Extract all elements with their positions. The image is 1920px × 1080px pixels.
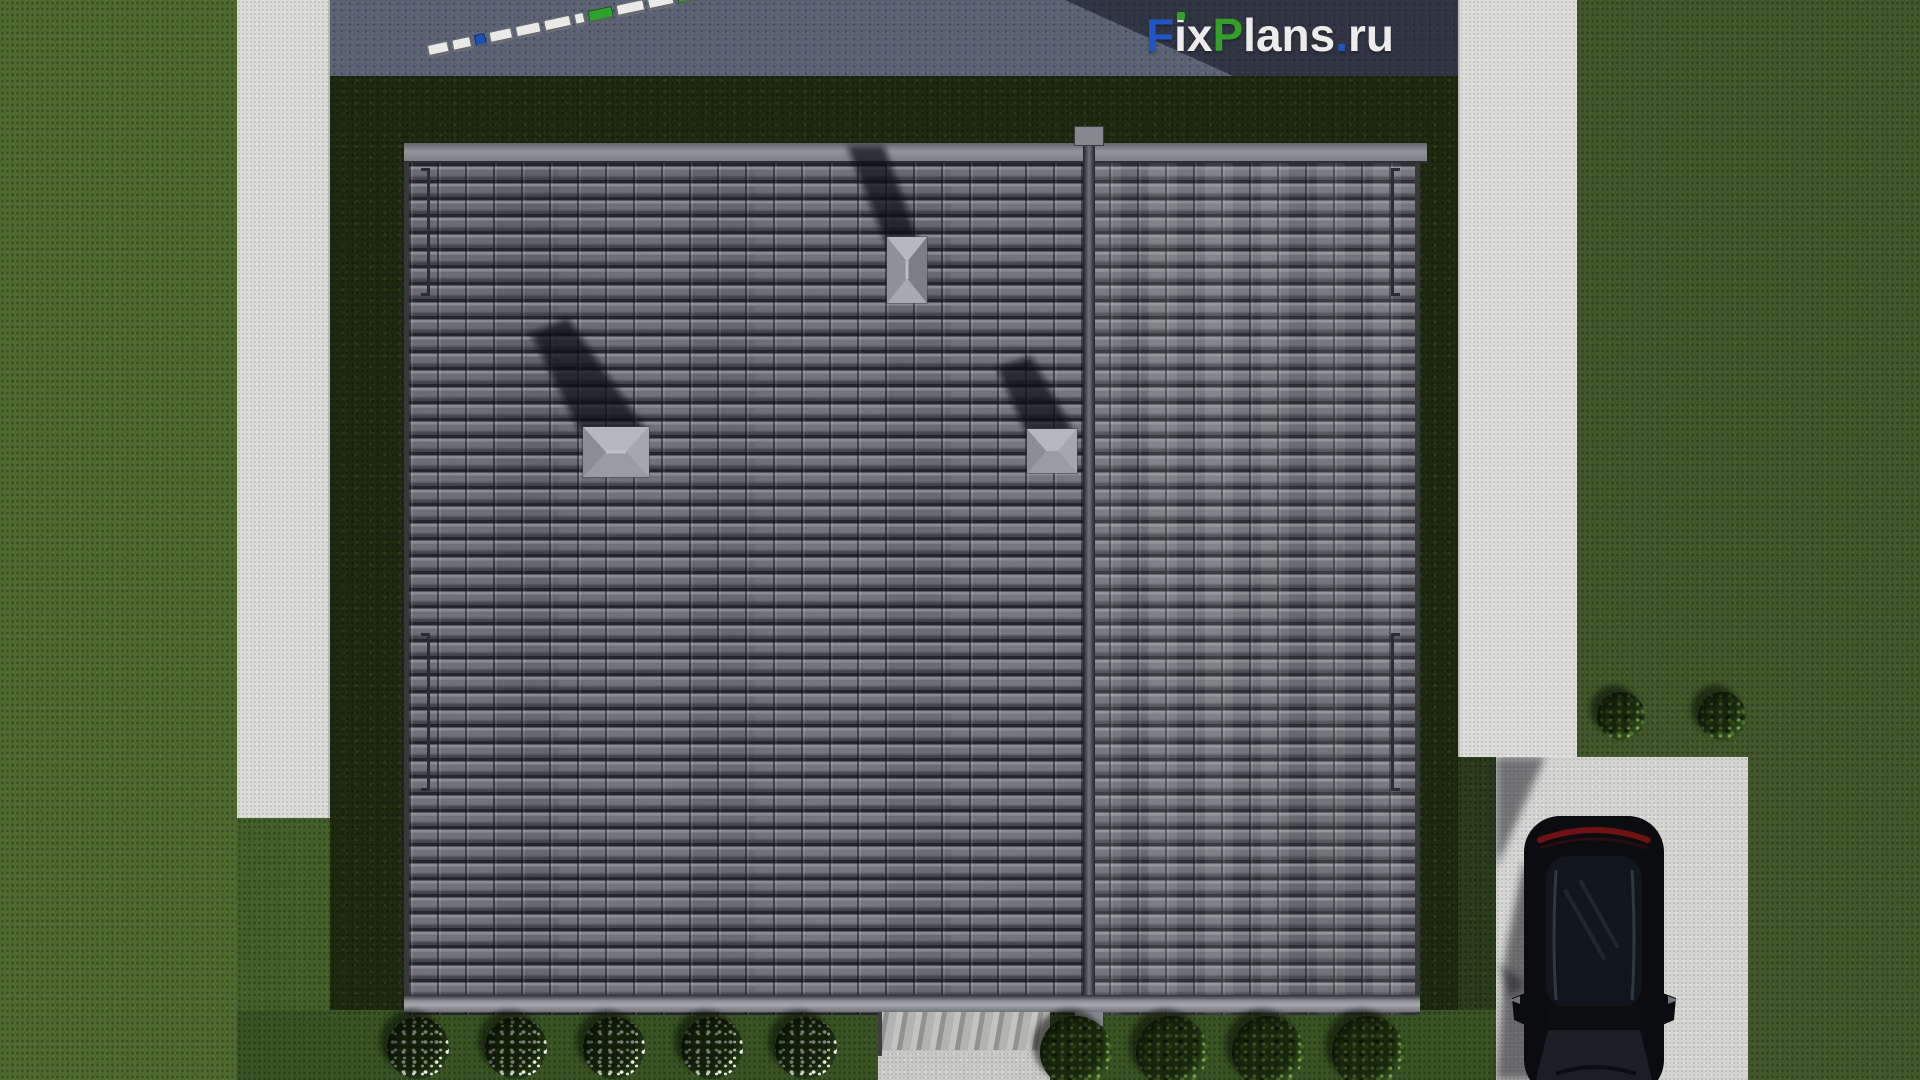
roof-vent-3 — [1027, 429, 1077, 473]
fence-segment — [573, 11, 585, 26]
flower-bush — [681, 1017, 743, 1079]
lawn-left — [0, 0, 237, 1080]
car — [1510, 816, 1678, 1080]
shrub — [1040, 1016, 1112, 1080]
parked-car-layer — [1480, 757, 1780, 1080]
fence-segment-blue — [474, 32, 487, 47]
shrub — [1332, 1016, 1404, 1080]
sidewalk-left — [237, 0, 330, 818]
shrub — [1136, 1016, 1208, 1080]
entrance-walkway — [878, 1012, 1050, 1080]
flower-bush — [583, 1017, 645, 1079]
roof-vents-layer — [404, 143, 1420, 1012]
flower-bush — [387, 1017, 449, 1079]
logo-letter: x — [1187, 8, 1213, 62]
logo-letter: P — [1212, 8, 1243, 62]
vent-shadow — [847, 146, 919, 252]
roof-vent-1 — [887, 237, 927, 303]
house-roof — [404, 143, 1420, 1012]
shrub — [1698, 692, 1746, 740]
aerial-site-render: FixPlans.ru — [0, 0, 1920, 1080]
logo-letters: lans — [1243, 8, 1335, 62]
logo-letter: F — [1146, 8, 1174, 62]
car-roof-glass — [1546, 856, 1642, 1008]
sidewalk-right — [1458, 0, 1577, 757]
roof-vent-2 — [583, 427, 649, 477]
logo-letters: ru — [1348, 8, 1394, 62]
vent-shadow — [531, 318, 646, 444]
walkway-shadow-edge — [878, 1012, 882, 1056]
flower-bush — [775, 1017, 837, 1079]
shrub — [1232, 1016, 1304, 1080]
car-cowl — [1548, 1006, 1640, 1028]
walkway-stone-band — [878, 1012, 1050, 1050]
flower-bush — [485, 1017, 547, 1079]
logo-letter-i: i — [1174, 8, 1187, 62]
shrub — [1597, 692, 1645, 740]
logo-dot: . — [1335, 8, 1348, 62]
fixplans-watermark: FixPlans.ru — [1146, 8, 1394, 62]
